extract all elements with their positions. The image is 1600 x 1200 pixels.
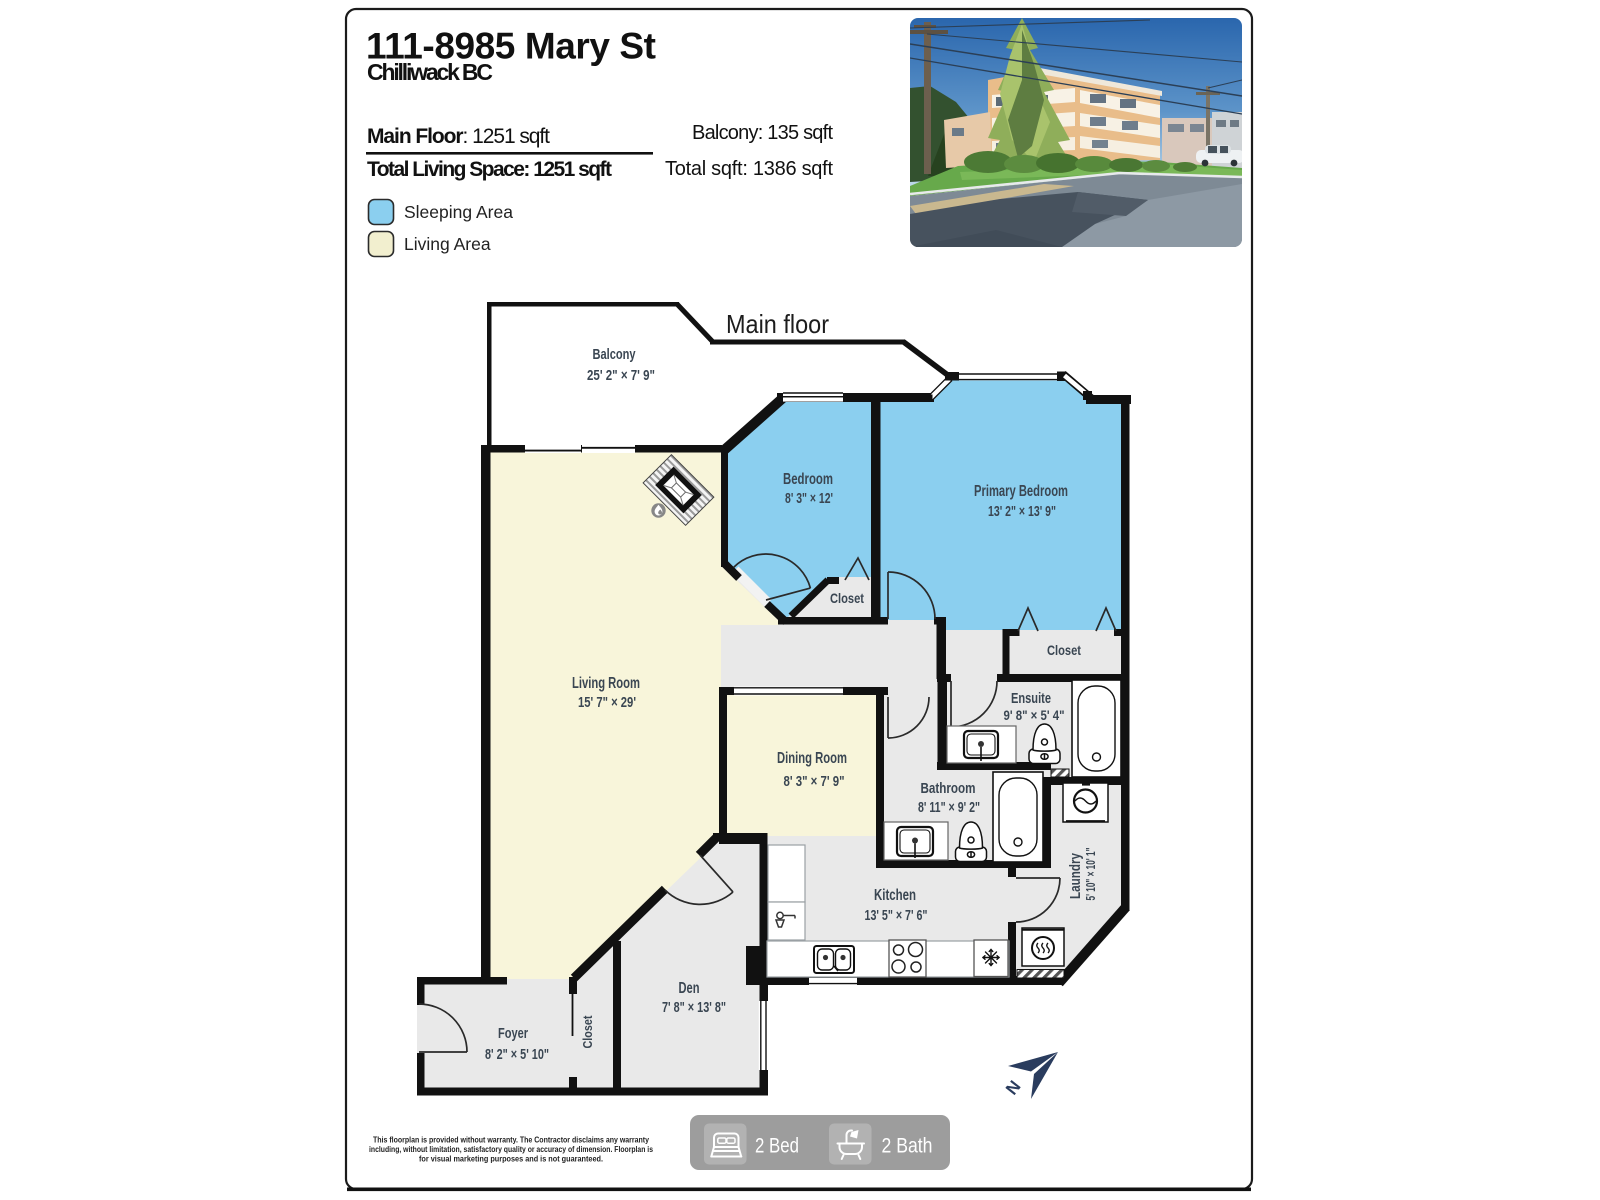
svg-text:Balcony: Balcony (593, 346, 636, 363)
svg-text:15' 7" × 29': 15' 7" × 29' (578, 695, 636, 711)
svg-text:2 Bath: 2 Bath (882, 1134, 933, 1158)
svg-text:Living Area: Living Area (404, 234, 491, 254)
svg-text:Total sqft: 1386 sqft: Total sqft: 1386 sqft (665, 158, 833, 180)
svg-text:Balcony: 135 sqft: Balcony: 135 sqft (692, 122, 833, 144)
svg-text:7' 8" × 13' 8": 7' 8" × 13' 8" (662, 1000, 726, 1016)
svg-text:9' 8" × 5' 4": 9' 8" × 5' 4" (1004, 708, 1065, 723)
svg-text:8' 11" × 9' 2": 8' 11" × 9' 2" (918, 800, 980, 816)
svg-text:Laundry: Laundry (1068, 853, 1084, 899)
svg-text:Closet: Closet (1047, 642, 1081, 658)
svg-text:for visual marketing purposes: for visual marketing purposes and is not… (419, 1154, 603, 1164)
svg-text:including, without limitation,: including, without limitation, satisfact… (369, 1144, 653, 1154)
svg-text:8' 2" × 5' 10": 8' 2" × 5' 10" (485, 1047, 549, 1063)
svg-text:Dining Room: Dining Room (777, 750, 847, 767)
svg-text:Ensuite: Ensuite (1011, 690, 1051, 707)
svg-text:8' 3" × 12': 8' 3" × 12' (785, 491, 833, 507)
svg-text:Closet: Closet (830, 590, 864, 606)
svg-text:8' 3" × 7' 9": 8' 3" × 7' 9" (784, 774, 845, 790)
svg-text:Kitchen: Kitchen (874, 887, 916, 904)
svg-text:13' 5" × 7' 6": 13' 5" × 7' 6" (865, 908, 928, 924)
svg-text:2 Bed: 2 Bed (755, 1134, 799, 1158)
svg-text:13' 2" × 13' 9": 13' 2" × 13' 9" (988, 504, 1056, 520)
svg-text:Bathroom: Bathroom (921, 780, 976, 797)
svg-text:Chilliwack BC: Chilliwack BC (367, 59, 493, 85)
svg-text:Living Room: Living Room (572, 675, 640, 692)
svg-text:25' 2" × 7' 9": 25' 2" × 7' 9" (587, 368, 655, 384)
svg-text:Closet: Closet (580, 1015, 595, 1049)
svg-text:Bedroom: Bedroom (783, 471, 833, 488)
svg-text:Total Living Space: 1251 sqft: Total Living Space: 1251 sqft (367, 158, 612, 181)
svg-text:Primary Bedroom: Primary Bedroom (974, 483, 1068, 500)
svg-text:Den: Den (679, 980, 700, 997)
svg-text:Sleeping Area: Sleeping Area (404, 202, 513, 222)
svg-text:Foyer: Foyer (498, 1025, 528, 1042)
svg-text:5' 10" × 10' 1": 5' 10" × 10' 1" (1083, 848, 1098, 901)
svg-text:Main floor: Main floor (726, 309, 829, 339)
svg-text:Main Floor: 1251 sqft: Main Floor: 1251 sqft (367, 125, 550, 148)
svg-text:This floorplan is provided wit: This floorplan is provided without warra… (373, 1135, 649, 1145)
